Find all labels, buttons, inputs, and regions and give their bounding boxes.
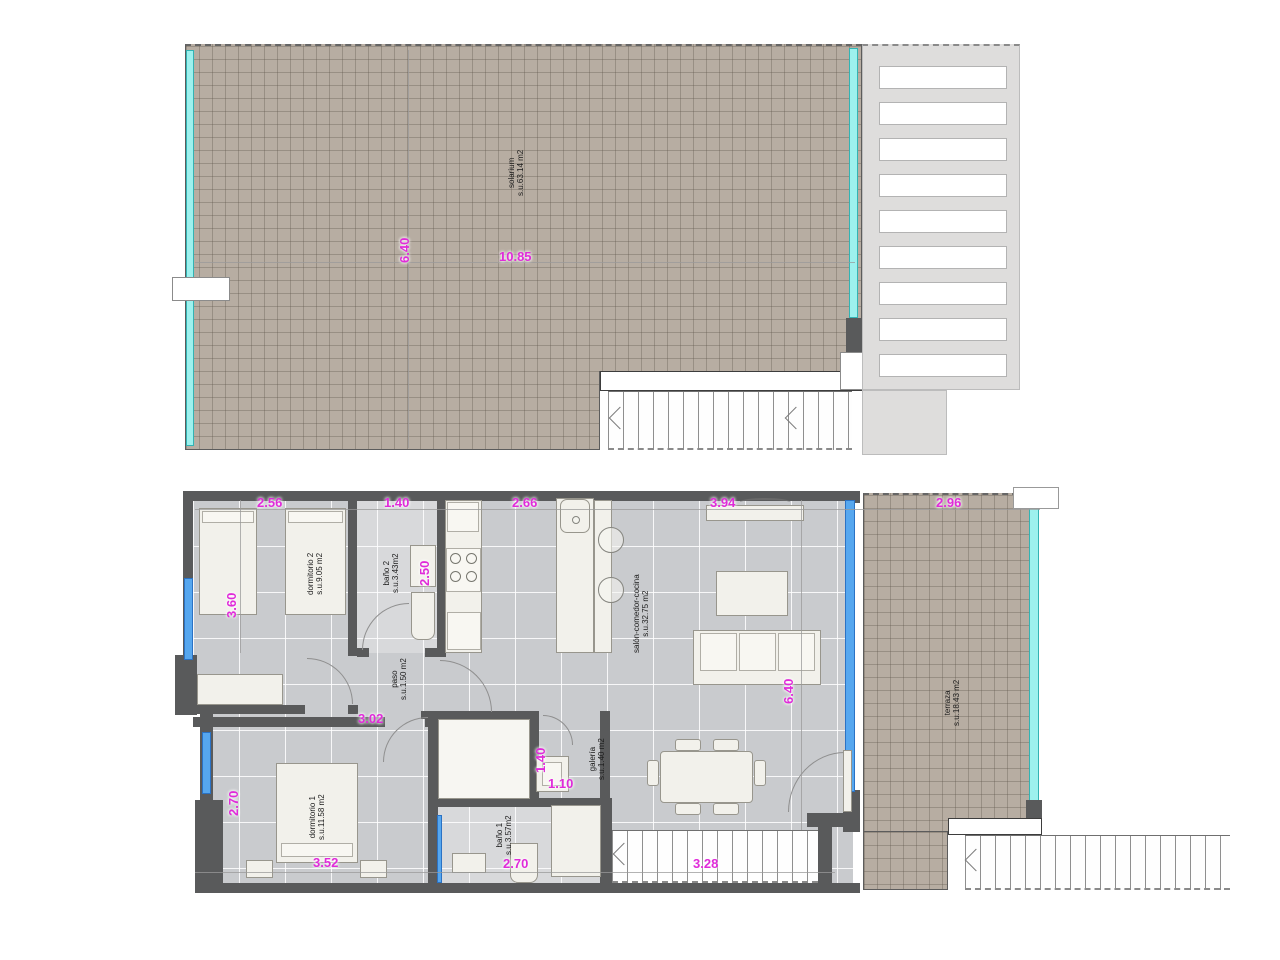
- bano2-toilet: [411, 592, 435, 640]
- room-area: s.u.3.57m2: [504, 815, 513, 855]
- room-area: s.u.9.05 m2: [315, 553, 324, 595]
- solarium-lower-wall: [600, 371, 862, 391]
- pergola-slat: [879, 246, 1007, 269]
- dim-dorm1-width: 3.52: [313, 855, 338, 870]
- room-name: terraza: [943, 690, 952, 715]
- dorm1-nightstand-right: [360, 860, 387, 878]
- dorm1-nightstand-left: [246, 860, 273, 878]
- room-label-paso: paso s.u.1.50 m2: [390, 658, 408, 700]
- dorm1-closet: [438, 719, 530, 799]
- pergola-slat: [879, 210, 1007, 233]
- dim-bano2-height: 2.50: [417, 561, 432, 586]
- wall-dorm1-top: [193, 717, 385, 727]
- room-label-bano2: baño 2 s.u.3.43m2: [382, 553, 400, 593]
- dim-dorm2-height: 3.60: [224, 593, 239, 618]
- pergola-slat: [879, 174, 1007, 197]
- upper-staircase: [608, 391, 852, 450]
- dim-bano1-width: 2.70: [503, 856, 528, 871]
- dorm2-bed-1-pillow: [202, 511, 254, 523]
- room-name: baño 2: [382, 561, 391, 585]
- wall-closet-top: [421, 711, 538, 719]
- room-area: s.u.11.58 m2: [317, 794, 326, 840]
- room-label-dormitorio1: dormitorio 1 s.u.11.58 m2: [308, 794, 326, 840]
- solarium-left-glass-railing: [186, 50, 194, 446]
- dining-chair: [675, 739, 701, 751]
- room-name: salón-comedor-cocina: [632, 574, 641, 653]
- terraza-bottom-wall: [948, 818, 1042, 835]
- room-label-dormitorio2: dormitorio 2 s.u.9.05 m2: [306, 553, 324, 595]
- room-area: s.u.1.50 m2: [399, 658, 408, 700]
- salon-tv: [740, 498, 790, 506]
- room-name: solarium: [507, 158, 516, 188]
- dorm2-wardrobe: [197, 674, 283, 705]
- wall-corner-step-h: [807, 813, 857, 827]
- pergola-slat: [879, 102, 1007, 125]
- wall-dorm2-bottom: [193, 705, 305, 714]
- wall-dorm2-bottom-stub: [348, 705, 358, 714]
- pergola-slat: [879, 282, 1007, 305]
- sofa-cushion: [739, 633, 776, 671]
- room-area: s.u.63.14 m2: [516, 150, 525, 196]
- room-area: s.u.18.43 m2: [952, 680, 961, 726]
- window-salon-slider: [845, 500, 855, 792]
- solarium-tiled-deck-lower: [185, 371, 600, 450]
- hob-burner: [450, 571, 461, 582]
- room-label-terraza: terraza s.u.18.43 m2: [943, 680, 961, 726]
- kitchen-sink-drain: [572, 516, 580, 524]
- wall-corner-step-v: [818, 827, 832, 887]
- room-name: dormitorio 1: [308, 796, 317, 838]
- pergola-slat: [879, 318, 1007, 341]
- dorm2-bed-2-pillow: [288, 511, 343, 523]
- room-label-salon: salón-comedor-cocina s.u.32.75 m2: [632, 574, 650, 653]
- room-area: s.u.3.43m2: [391, 553, 400, 593]
- dining-chair: [647, 760, 659, 786]
- dining-chair: [675, 803, 701, 815]
- hob-burner: [466, 571, 477, 582]
- room-label-solarium: solarium s.u.63.14 m2: [507, 150, 525, 196]
- dim-stairs-width: 3.28: [693, 856, 718, 871]
- terraza-top-notch: [1013, 487, 1059, 509]
- dining-chair: [713, 803, 739, 815]
- room-name: galería: [588, 747, 597, 771]
- kitchen-stool-1: [598, 527, 624, 553]
- room-label-galeria: galería s.u.1.40 m2: [588, 738, 606, 780]
- room-name: paso: [390, 670, 399, 687]
- room-label-bano1: baño 1 s.u.3.57m2: [495, 815, 513, 855]
- dim-solarium-width: 10.85: [499, 249, 532, 264]
- wall-bottom: [195, 883, 860, 893]
- dining-chair: [713, 739, 739, 751]
- room-name: dormitorio 2: [306, 553, 315, 595]
- dimline-top: [195, 509, 1040, 510]
- dim-galeria-width: 1.10: [548, 776, 573, 791]
- terraza-glass-railing: [1029, 498, 1039, 820]
- solarium-left-step: [172, 277, 230, 301]
- window-dorm2: [184, 578, 193, 660]
- exterior-staircase: [965, 835, 1230, 890]
- wall-dorm2-bano2: [348, 491, 357, 656]
- dim-galeria-height: 1.40: [533, 748, 548, 773]
- floorplan-canvas: solarium s.u.63.14 m2 6.40 10.85: [0, 0, 1280, 960]
- dimline-salon-height: [801, 500, 802, 830]
- salon-tv-table: [716, 571, 788, 616]
- hob-burner: [466, 553, 477, 564]
- solarium-tiled-deck: [185, 44, 862, 373]
- bano1-sink: [452, 853, 486, 873]
- pergola-roof: [862, 44, 1020, 390]
- terraza-tiles-leg: [863, 832, 948, 890]
- kitchen-fridge: [447, 502, 479, 532]
- dim-dorm2-width: 2.56: [257, 495, 282, 510]
- room-name: baño 1: [495, 823, 504, 847]
- dining-table: [660, 751, 753, 803]
- pergola-lower-block: [862, 390, 947, 455]
- wall-bano2-door-stub-right: [425, 648, 446, 657]
- kitchen-stool-2: [598, 577, 624, 603]
- dimline-bottom: [195, 872, 835, 873]
- dim-bano2-width: 1.40: [384, 495, 409, 510]
- solarium-right-glass-railing: [849, 48, 858, 318]
- bano1-shower: [551, 805, 601, 877]
- dim-terraza-width: 2.96: [936, 495, 961, 510]
- pergola-slat: [879, 138, 1007, 161]
- dimline-dorm2-height: [240, 500, 241, 653]
- room-area: s.u.1.40 m2: [597, 738, 606, 780]
- kitchen-oven: [447, 612, 481, 650]
- pergola-slat: [879, 66, 1007, 89]
- dim-salon-width: 3.94: [710, 495, 735, 510]
- pergola-slat: [879, 354, 1007, 377]
- dim-cocina-width: 2.66: [512, 495, 537, 510]
- terraza-tiles: [863, 493, 1038, 832]
- dim-dorm1-height: 2.70: [226, 791, 241, 816]
- hob-burner: [450, 553, 461, 564]
- entry-door-leaf: [843, 750, 852, 812]
- dining-chair: [754, 760, 766, 786]
- dim-solarium-height: 6.40: [397, 238, 412, 263]
- dim-salon-height: 6.40: [781, 679, 796, 704]
- wall-bano1-right: [600, 798, 612, 888]
- sofa-cushion: [700, 633, 737, 671]
- window-dorm1: [202, 732, 211, 794]
- dim-paso-width: 3.02: [358, 711, 383, 726]
- wall-left-bottom-thick: [195, 800, 223, 893]
- room-area: s.u.32.75 m2: [641, 591, 650, 637]
- sofa-cushion: [778, 633, 815, 671]
